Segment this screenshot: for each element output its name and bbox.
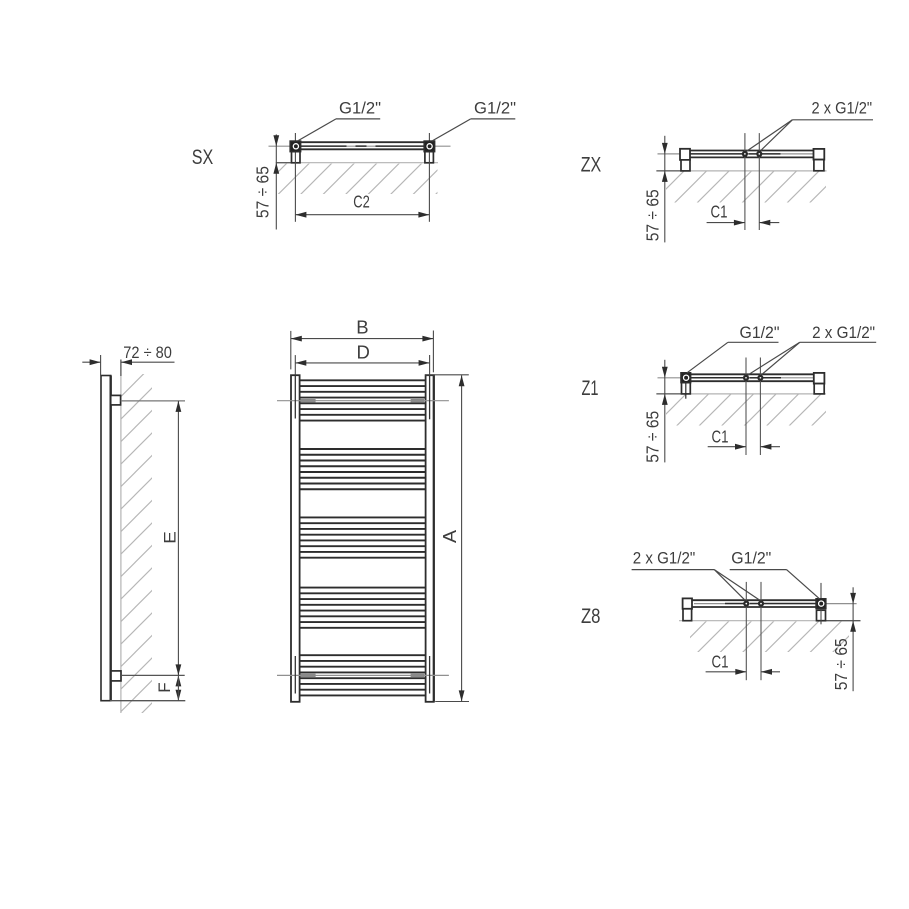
svg-text:Z8: Z8: [581, 605, 601, 628]
svg-text:57 ÷ 65: 57 ÷ 65: [642, 411, 662, 463]
svg-text:G1/2": G1/2": [740, 323, 780, 342]
svg-text:ZX: ZX: [581, 154, 602, 177]
svg-text:G1/2": G1/2": [731, 549, 771, 568]
svg-text:SX: SX: [192, 146, 214, 169]
svg-text:2 x G1/2": 2 x G1/2": [633, 549, 696, 568]
svg-text:C1: C1: [712, 652, 729, 672]
svg-text:72 ÷ 80: 72 ÷ 80: [123, 343, 172, 362]
svg-text:2 x G1/2": 2 x G1/2": [812, 98, 873, 117]
svg-text:57 ÷ 65: 57 ÷ 65: [642, 189, 662, 241]
svg-text:57 ÷ 65: 57 ÷ 65: [831, 638, 851, 690]
svg-text:G1/2": G1/2": [339, 99, 381, 118]
svg-text:Z1: Z1: [582, 377, 599, 400]
svg-text:G1/2": G1/2": [474, 99, 516, 118]
svg-text:2 x G1/2": 2 x G1/2": [812, 323, 875, 342]
svg-text:B: B: [356, 316, 368, 337]
svg-text:57 ÷ 65: 57 ÷ 65: [252, 166, 272, 218]
svg-text:D: D: [357, 341, 370, 362]
svg-text:A: A: [439, 529, 460, 543]
svg-text:C2: C2: [353, 192, 370, 212]
svg-text:F: F: [155, 682, 174, 692]
svg-text:C1: C1: [712, 427, 729, 447]
svg-text:C1: C1: [711, 201, 728, 221]
svg-text:E: E: [160, 531, 179, 544]
